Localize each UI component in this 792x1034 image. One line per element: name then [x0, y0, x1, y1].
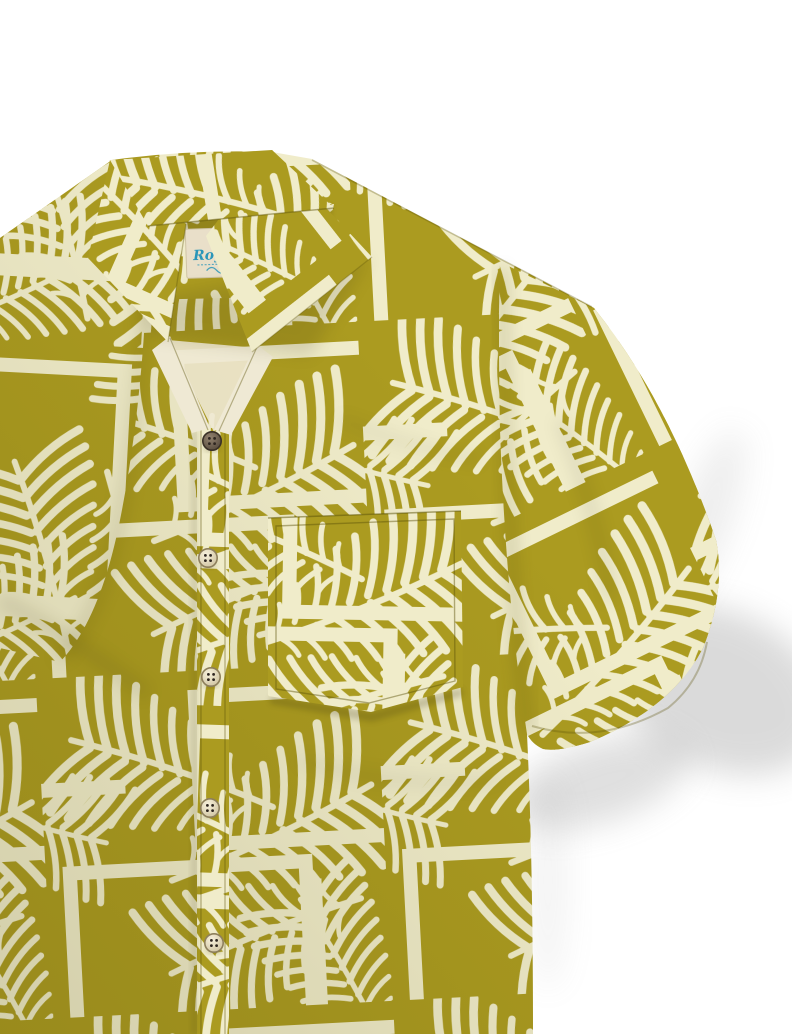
- hawaiian-shirt-photo: Royaura: [0, 0, 792, 1034]
- shirt-button-4: [201, 799, 219, 818]
- shirt-button-1: [203, 432, 221, 451]
- product-photo: Royaura: [0, 0, 792, 1034]
- shirt-button-2: [199, 549, 217, 568]
- shirt-button-3: [202, 668, 220, 687]
- chest-pocket: [268, 511, 463, 722]
- shirt-button-5: [205, 934, 223, 953]
